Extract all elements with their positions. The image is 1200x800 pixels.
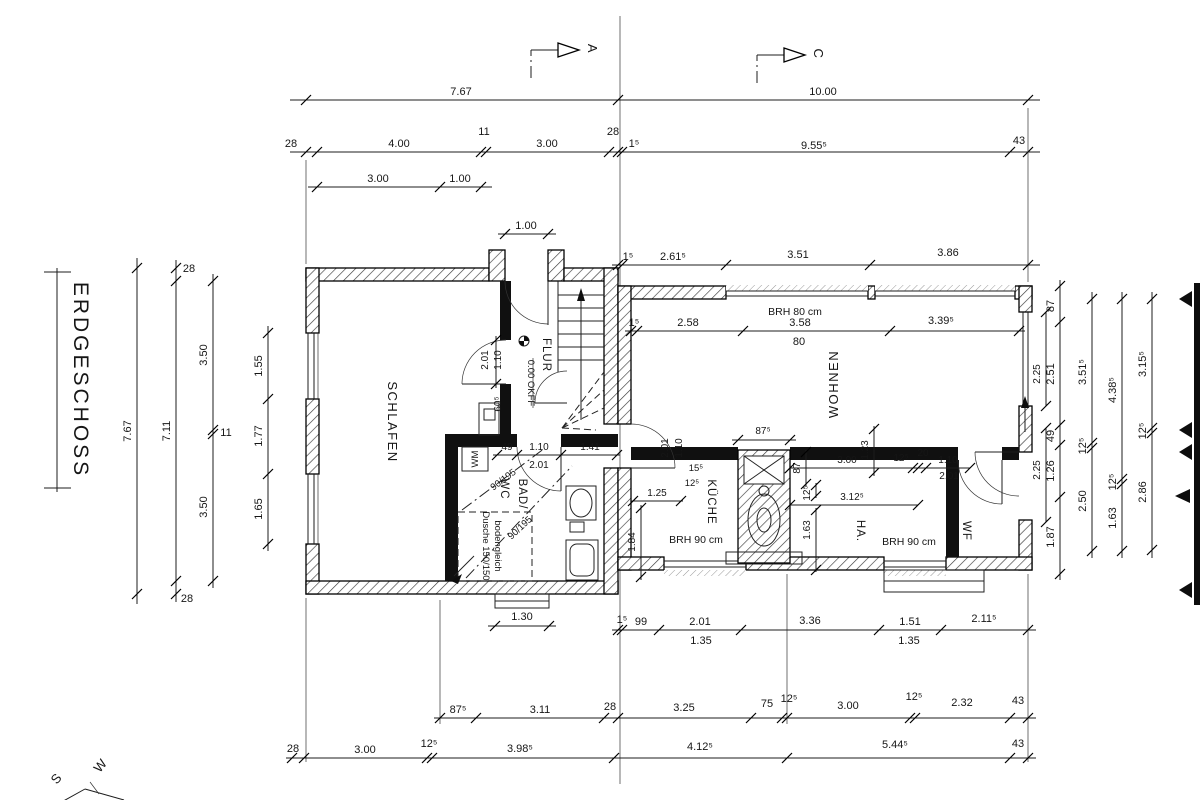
dim-label: 1.35 — [898, 635, 919, 647]
wf-door — [958, 460, 1002, 504]
dim-label: 49 — [501, 442, 513, 453]
dim-label: 1.26 — [1045, 460, 1057, 481]
dim-label: 2.01 — [939, 471, 959, 482]
section-arrow-icon — [1179, 444, 1192, 460]
dim-chain-wohnen-inner: 1⁵ 2.58 3.58 80 3.39⁵ — [625, 315, 1025, 348]
dim-label: 2.32 — [951, 697, 972, 709]
dim-label: 1⁵ — [617, 614, 628, 626]
dim-label: 2.86 — [1137, 481, 1149, 502]
dim-label: 12⁵ — [906, 691, 923, 703]
section-arrow-icon — [1175, 489, 1190, 503]
dim-chain-bottom-outer: 28 3.00 12⁵ 3.98⁵ 4.12⁵ 5.44⁵ 43 — [286, 738, 1036, 763]
cistern — [570, 522, 584, 532]
dim-label: 1.10 — [493, 350, 504, 370]
dim-label: 7.11 — [161, 421, 173, 442]
dim-chain-left-total: 7.67 — [122, 258, 142, 604]
dim-label: 2.61⁵ — [660, 251, 686, 263]
dim-label: 3.58 — [789, 317, 810, 329]
dim-label: 3.50 — [198, 344, 210, 365]
section-arrow-a-icon — [558, 43, 579, 57]
dim-label: 2.01 — [480, 350, 491, 370]
compass-west-label: W — [90, 755, 110, 775]
dim-label: 1.10 — [529, 442, 549, 453]
dim-label: 1.77 — [253, 425, 265, 446]
sill-height-label: BRH 90 cm — [669, 534, 723, 546]
dim-chain-right-in1: 3.51⁵ 12⁵ 2.50 — [1077, 292, 1097, 558]
door-size-label: 90/195 — [506, 514, 535, 542]
dim-chain-right-in2: 4.38⁵ 12⁵ 1.63 — [1107, 292, 1127, 558]
dim-label: 1.00 — [449, 173, 470, 185]
dim-label: 12⁵ — [781, 693, 798, 705]
dim-label: 3.39⁵ — [928, 315, 954, 327]
dim-label: 1.55 — [253, 355, 265, 376]
dim-label: 1⁵ — [629, 317, 640, 329]
dim-label: 99 — [635, 616, 647, 628]
level-label: 0.00 OKFF — [525, 360, 536, 407]
dim-label: 3.15⁵ — [1137, 351, 1149, 377]
dim-label: 1.30 — [511, 611, 532, 623]
dim-chain-left-wall: 28 7.11 28 — [161, 260, 195, 605]
dim-label: 12⁵ — [1137, 423, 1149, 440]
dim-label: 80 — [793, 336, 805, 348]
dim-label: 87 — [1045, 300, 1057, 312]
dim-label: 3.51⁵ — [1077, 359, 1089, 385]
washing-machine-label: WM — [470, 450, 481, 467]
dim-label: 1.65 — [253, 498, 265, 519]
dim-label: 5.44⁵ — [882, 739, 908, 751]
dim-label: 2.25 — [1032, 364, 1043, 384]
dim-label: 3.00 — [837, 700, 858, 712]
dim-chain-left-openings: 1.55 1.77 1.65 — [253, 326, 273, 551]
dim-label: 1.25 — [647, 488, 667, 499]
left-building-partitions — [445, 281, 618, 581]
dim-label: 12⁵ — [802, 485, 813, 500]
dim-chain-wohnen-top: 1⁵ 2.61⁵ 3.51 3.86 — [612, 247, 1040, 270]
dim-label: 43 — [1012, 695, 1024, 707]
dim-label: 87⁵ — [450, 704, 467, 716]
floorplan-sheet: A C ERDGESCHOSS 7.67 10.00 28 4.00 11 3.… — [0, 0, 1200, 800]
level-marker: FLUR 0.00 OKFF — [519, 336, 552, 408]
left-building-walls — [306, 250, 618, 594]
dim-label: 3.11 — [530, 704, 551, 716]
dim-label: 1.41 — [580, 442, 600, 453]
sill-height-label: BRH 90 cm — [882, 536, 936, 548]
section-arrow-icon — [1179, 422, 1192, 438]
dim-label: 1.84 — [627, 532, 638, 552]
dim-label: 1.35 — [690, 635, 711, 647]
entry-door — [505, 281, 548, 325]
dim-label: 15⁵ — [689, 463, 704, 474]
dim-label: 11 — [478, 126, 489, 138]
dim-label: 3.00 — [837, 455, 857, 466]
dim-chain-bottom-mid: 87⁵ 3.11 28 3.25 75 12⁵ 3.00 12⁵ 2.32 43 — [434, 691, 1036, 723]
dim-chain-top-sub: 3.00 1.00 — [308, 173, 492, 192]
dim-label: 49 — [1045, 430, 1057, 442]
section-marker-c: C — [757, 48, 826, 83]
dim-label: 4.00 — [388, 138, 409, 150]
dim-label: 28 — [604, 701, 616, 713]
section-letter-a: A — [585, 44, 600, 54]
dim-chain-right-wall: 87 2.51 49 1.26 1.87 — [1045, 280, 1065, 580]
dim-label: 4.38⁵ — [1107, 377, 1119, 403]
dim-chain-left-mid: 3.50 11 3.50 — [198, 274, 232, 588]
dim-label: 60⁵ — [493, 396, 504, 411]
shower-note-line2: bodengleich — [492, 520, 503, 571]
dim-label: 75 — [761, 698, 773, 710]
section-letter-c: C — [811, 49, 826, 60]
bath-fixtures: WM 90/195 90/195 Dusche 150/150 bodengle… — [451, 447, 598, 584]
dim-label: 3.51 — [787, 249, 808, 261]
shower-note-line1: Dusche 150/150 — [480, 511, 491, 580]
dim-label: 28 — [287, 743, 299, 755]
stair — [558, 281, 604, 430]
dim-label: 28 — [183, 263, 195, 275]
dim-label: 28 — [285, 138, 297, 150]
dim-label: 2.25 — [1032, 460, 1043, 480]
dim-label: 7.67 — [450, 86, 471, 98]
dim-label: 43 — [1012, 738, 1024, 750]
dim-schlafen-door: 2.01 1.10 60⁵ — [480, 335, 504, 412]
dim-label: 12⁵ — [421, 738, 438, 750]
dim-label: 3.50 — [198, 496, 210, 517]
dim-label: 2.01 — [660, 438, 671, 458]
dim-label: 1.10 — [938, 455, 958, 466]
dim-label: 3.00 — [367, 173, 388, 185]
dim-label: 1.51 — [899, 616, 920, 628]
dim-chain-right-sill: 2.25 2.25 — [1032, 307, 1051, 527]
title-block: ERDGESCHOSS — [44, 268, 92, 492]
dim-extension-lines — [306, 108, 1028, 762]
scan-edge-marks — [1175, 283, 1200, 605]
dim-label: 3.25 — [673, 702, 694, 714]
dim-label: 12⁵ — [685, 478, 700, 489]
compass: S W — [48, 755, 124, 800]
dim-label: 9.55⁵ — [801, 140, 827, 152]
dim-label: 1.63 — [802, 520, 813, 540]
dim-label: 3.00 — [354, 744, 375, 756]
dim-label: 87⁵ — [755, 426, 770, 437]
dim-chain-bottom-inner: 1⁵ 99 2.01 1.35 3.36 1.51 1.35 2.11⁵ — [612, 613, 1036, 647]
room-label-ha: HA. — [854, 520, 866, 542]
dim-label: 28 — [181, 593, 193, 605]
dim-label: 1⁵ — [623, 251, 634, 263]
dim-kueche-door: 2.01 1.10 15⁵ 12⁵ — [660, 438, 703, 489]
dim-chain-right-in3: 3.15⁵ 12⁵ 2.86 — [1137, 292, 1157, 558]
dim-label: 2.50 — [1077, 490, 1089, 511]
dim-label: 43 — [1013, 135, 1025, 147]
understair-door — [535, 371, 567, 403]
room-label-wohnen: WOHNEN — [826, 350, 841, 418]
floorplan-canvas: A C ERDGESCHOSS 7.67 10.00 28 4.00 11 3.… — [0, 0, 1200, 800]
dim-label: 10.00 — [809, 86, 837, 98]
section-arrow-icon — [1179, 291, 1192, 307]
dim-label: 2.51 — [1045, 363, 1057, 384]
dim-label: 7.67 — [122, 420, 134, 441]
section-arrow-c-icon — [784, 48, 805, 62]
dim-label: 11 — [220, 427, 231, 439]
room-label-kueche: KÜCHE — [705, 479, 717, 524]
dim-label: 28 — [607, 126, 619, 138]
bathtub — [566, 540, 598, 580]
dim-label: 12⁵ — [893, 453, 908, 464]
dim-label: 1⁵ — [629, 138, 640, 150]
section-marker-a: A — [531, 43, 600, 78]
dim-label: 2.58 — [677, 317, 698, 329]
dim-label: 2.01 — [529, 460, 549, 471]
compass-south-label: S — [48, 769, 66, 786]
left-step: 1.30 — [488, 594, 556, 631]
dim-label: 3.12⁵ — [840, 492, 864, 503]
dim-label: 3.98⁵ — [507, 743, 533, 755]
dim-chain-top-wall: 28 4.00 11 3.00 28 1⁵ 9.55⁵ 43 — [285, 126, 1040, 157]
dim-label: 3.36 — [799, 615, 820, 627]
dim-label: 2.01 — [689, 616, 710, 628]
dim-entry-door: 1.00 — [498, 220, 556, 239]
room-label-flur: FLUR — [540, 338, 552, 372]
dim-label: 3.86 — [937, 247, 958, 259]
dim-chain-top-overall: 7.67 10.00 — [290, 86, 1040, 105]
dim-label: 1.23 — [860, 440, 871, 460]
room-label-wc: WC — [498, 478, 510, 499]
room-label-schlafen: SCHLAFEN — [385, 381, 400, 462]
room-label-wf: WF — [960, 521, 972, 541]
page-title: ERDGESCHOSS — [69, 282, 92, 478]
dim-label: 3.00 — [536, 138, 557, 150]
section-arrow-icon — [1179, 582, 1192, 598]
dim-label: 1.10 — [674, 438, 685, 458]
room-label-bad: BAD/ — [516, 479, 528, 510]
dim-label: 1.00 — [515, 220, 536, 232]
dim-label: 12⁵ — [1107, 474, 1119, 491]
dim-label: 2.11⁵ — [971, 613, 996, 625]
dim-label: 1.63 — [1107, 507, 1119, 528]
dim-label: 4.12⁵ — [687, 741, 713, 753]
dim-label: 1.87 — [1045, 526, 1057, 547]
dim-label: 20 — [917, 448, 929, 459]
dim-label: 12⁵ — [1077, 438, 1089, 455]
right-building-windows — [664, 285, 1028, 576]
